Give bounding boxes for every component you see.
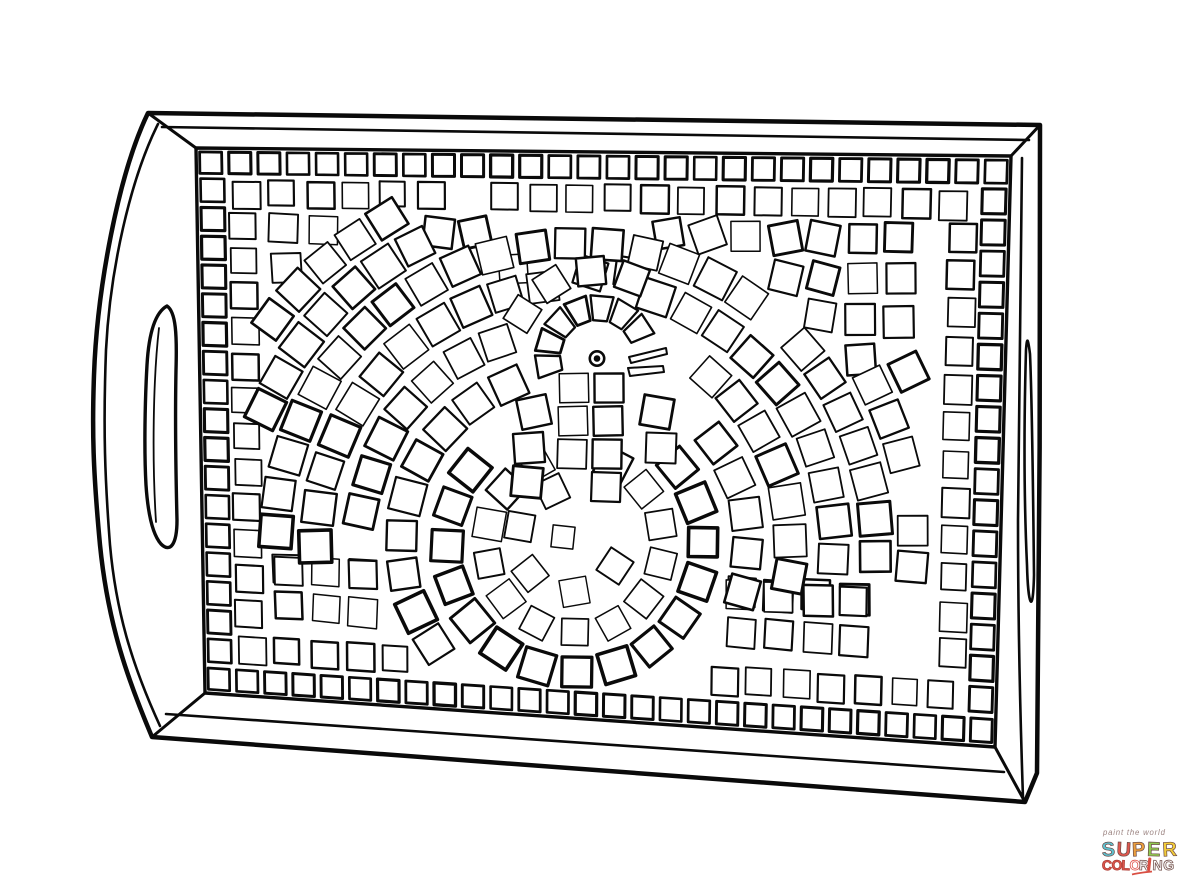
svg-text:N: N	[1152, 857, 1163, 873]
svg-text:G: G	[1163, 857, 1175, 873]
svg-text:paint the world: paint the world	[1102, 828, 1166, 837]
